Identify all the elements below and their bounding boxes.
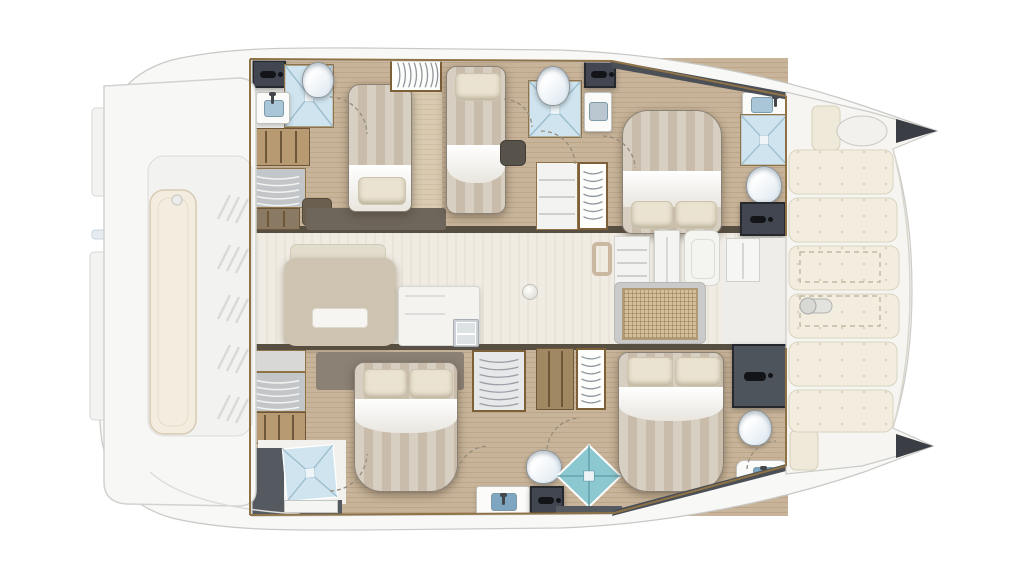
- stbd-fwd-shower: [732, 344, 788, 408]
- sunpads: [789, 150, 899, 432]
- foredeck-base: [786, 92, 937, 474]
- port-aft-double-bed: [348, 84, 412, 212]
- galley-counter: [398, 286, 480, 346]
- sunpad: [789, 246, 899, 290]
- galley-island-worktop: [312, 308, 368, 328]
- port-aft-locker: [250, 128, 310, 166]
- port-aft-washbasin: [256, 92, 290, 124]
- galley-double-sink: [453, 319, 479, 347]
- stbd-hanging-wardrobe-a: [472, 350, 526, 412]
- deck-fitting: [172, 195, 182, 205]
- salon-locker-b: [684, 230, 720, 286]
- port-mid-toilet: [536, 66, 570, 106]
- stbd-mid-shelf-unit: [536, 348, 574, 410]
- stbd-mid-head-wall: [556, 506, 622, 515]
- bar-stool: [592, 242, 612, 276]
- bow-pad-port: [812, 106, 840, 150]
- sunpad: [789, 150, 893, 194]
- stbd-aft-shower: [282, 444, 339, 502]
- port-hanging-wardrobe: [390, 58, 442, 92]
- stbd-aft-head-wall: [250, 448, 284, 502]
- stbd-linen-shelves: [250, 372, 306, 412]
- port-fwd-double-bed: [622, 110, 722, 234]
- stbd-mid-shower: [556, 444, 622, 508]
- sunpad: [789, 294, 899, 338]
- port-mid-seat: [500, 140, 526, 166]
- bench-cushion: [150, 190, 196, 434]
- bow-tip-starboard: [896, 434, 933, 458]
- port-aft-head-cabinet: [252, 60, 286, 88]
- port-mid-hanging-wardrobe: [578, 162, 608, 230]
- rattan-table: [622, 288, 698, 340]
- port-aft-cabin-aisle: [412, 90, 442, 210]
- stbd-fwd-double-bed: [618, 352, 724, 492]
- salon-floor-socket: [522, 284, 538, 300]
- port-mid-shelf-unit: [536, 162, 578, 230]
- port-fwd-shower: [740, 114, 788, 166]
- port-fwd-cabinet: [740, 202, 786, 236]
- port-mid-washbasin: [584, 92, 612, 132]
- bow-hatch: [837, 116, 887, 146]
- catamaran-floorplan: [0, 0, 1024, 581]
- storage-hatch-outline: [800, 296, 880, 326]
- foredeck: [786, 92, 937, 474]
- stbd-fwd-toilet: [738, 410, 772, 446]
- stbd-mid-washbasin: [476, 486, 530, 516]
- port-fwd-toilet: [746, 166, 782, 204]
- deck-vents: [218, 195, 248, 423]
- sunpad: [789, 390, 893, 432]
- fwd-cockpit-door: [726, 238, 760, 282]
- port-linen-shelves: [250, 168, 306, 208]
- salon-locker-a: [614, 236, 650, 288]
- stbd-vanity-shelf: [284, 500, 338, 513]
- port-shelf-unit: [250, 208, 300, 230]
- side-rail: [92, 230, 150, 239]
- sunpad: [789, 198, 897, 242]
- sunpad: [789, 342, 897, 386]
- stbd-hanging-wardrobe-b: [576, 348, 606, 410]
- stbd-fwd-washbasin: [736, 460, 788, 490]
- refrigerator: [654, 230, 680, 290]
- stbd-top-shelf: [250, 350, 306, 372]
- bow-pad-starboard: [790, 430, 818, 470]
- port-single-bed: [446, 66, 506, 214]
- galley-island: [284, 258, 396, 346]
- bow-tip-port: [896, 119, 937, 143]
- windlass-icon: [800, 298, 832, 314]
- storage-hatch-outline: [800, 252, 880, 282]
- stbd-aft-double-bed: [354, 362, 458, 492]
- port-mid-cabinet: [584, 60, 616, 88]
- port-aft-toilet: [302, 62, 334, 98]
